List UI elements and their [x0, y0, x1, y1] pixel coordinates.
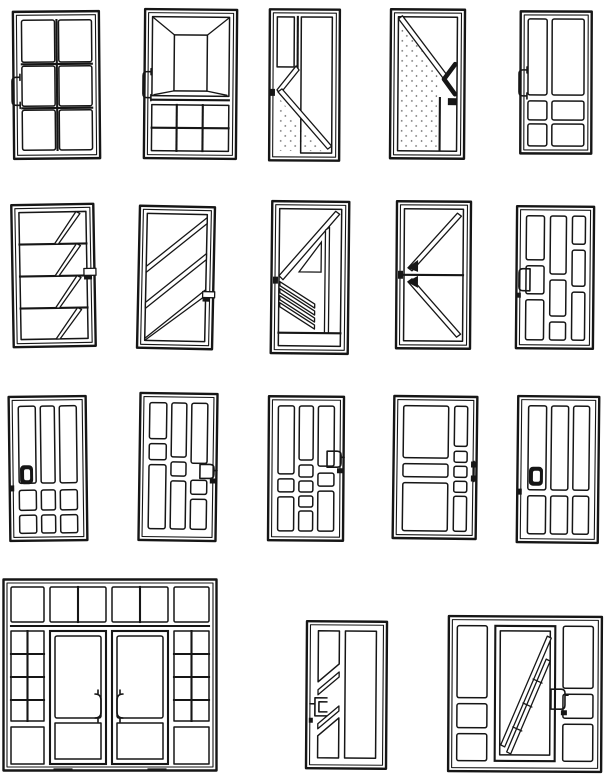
latch-nub — [270, 89, 275, 96]
door-design-15 — [515, 395, 601, 545]
door-design-13 — [266, 395, 345, 543]
latch-nub — [398, 271, 403, 279]
main-diagonal — [279, 211, 340, 281]
door-design-09 — [394, 200, 472, 351]
catalog-page — [0, 0, 604, 777]
ladder-rail-lower — [507, 659, 550, 754]
door-design-07 — [135, 204, 216, 351]
vertical-bar — [324, 227, 329, 333]
door-design-16 — [2, 578, 218, 772]
right-sidelight — [174, 631, 209, 764]
arrow-handle — [444, 64, 455, 94]
door-leaf-left — [50, 631, 106, 764]
door-design-14 — [391, 394, 479, 540]
door-design-04 — [388, 8, 466, 161]
door-design-17 — [304, 620, 388, 771]
door-design-03 — [268, 8, 342, 162]
door-leaf — [495, 626, 556, 761]
latch-nub — [448, 98, 457, 105]
door-design-05 — [519, 10, 594, 155]
latch-nub — [273, 277, 278, 284]
hatched-panel — [345, 631, 377, 758]
door-design-12 — [137, 391, 219, 542]
door-design-08 — [269, 200, 351, 356]
ladder-rail-upper — [501, 636, 552, 747]
door-handle — [551, 689, 568, 715]
door-design-11 — [7, 395, 89, 543]
door-leaf-right — [112, 631, 168, 764]
door-design-01 — [11, 10, 101, 161]
door-design-18 — [447, 615, 604, 774]
door-handle — [327, 451, 344, 473]
door-design-02 — [142, 8, 238, 161]
door-design-06 — [10, 202, 98, 348]
left-sidelight — [11, 631, 44, 764]
door-design-10 — [514, 205, 595, 351]
